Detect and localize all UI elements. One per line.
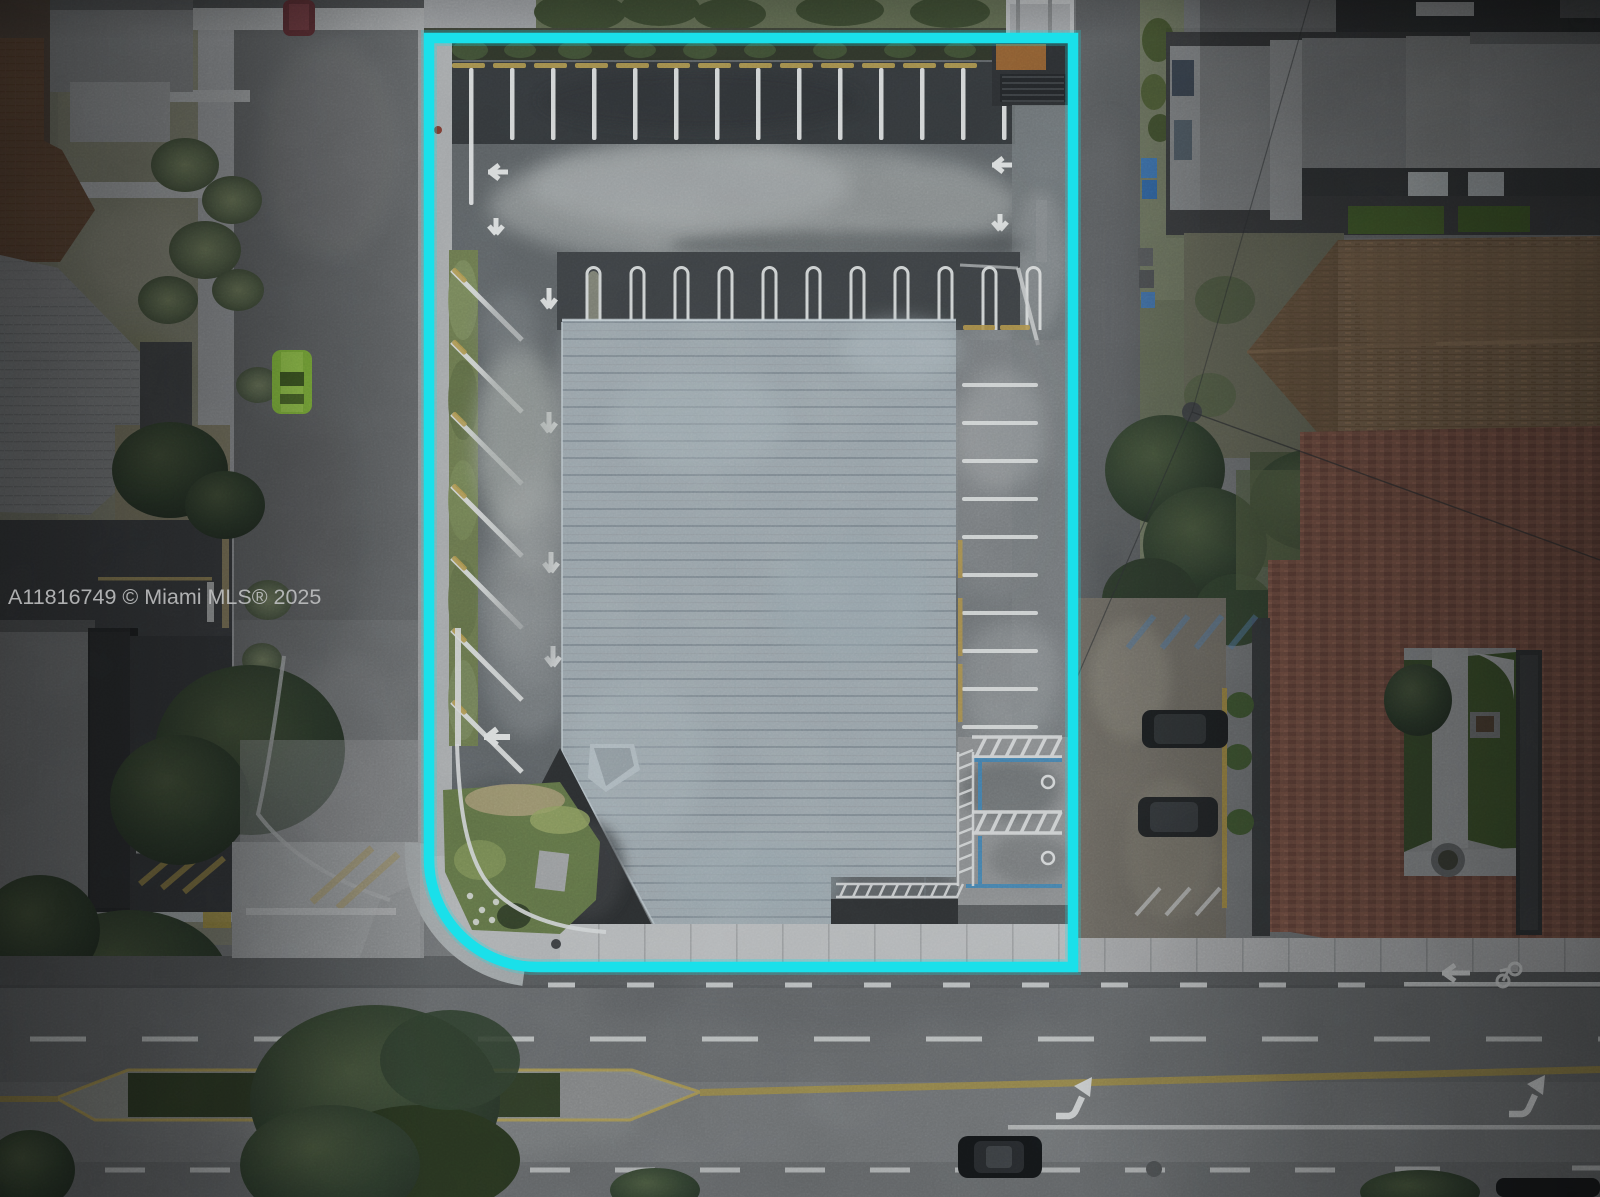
svg-text:A11816749 © Miami MLS® 2025: A11816749 © Miami MLS® 2025	[8, 585, 321, 609]
